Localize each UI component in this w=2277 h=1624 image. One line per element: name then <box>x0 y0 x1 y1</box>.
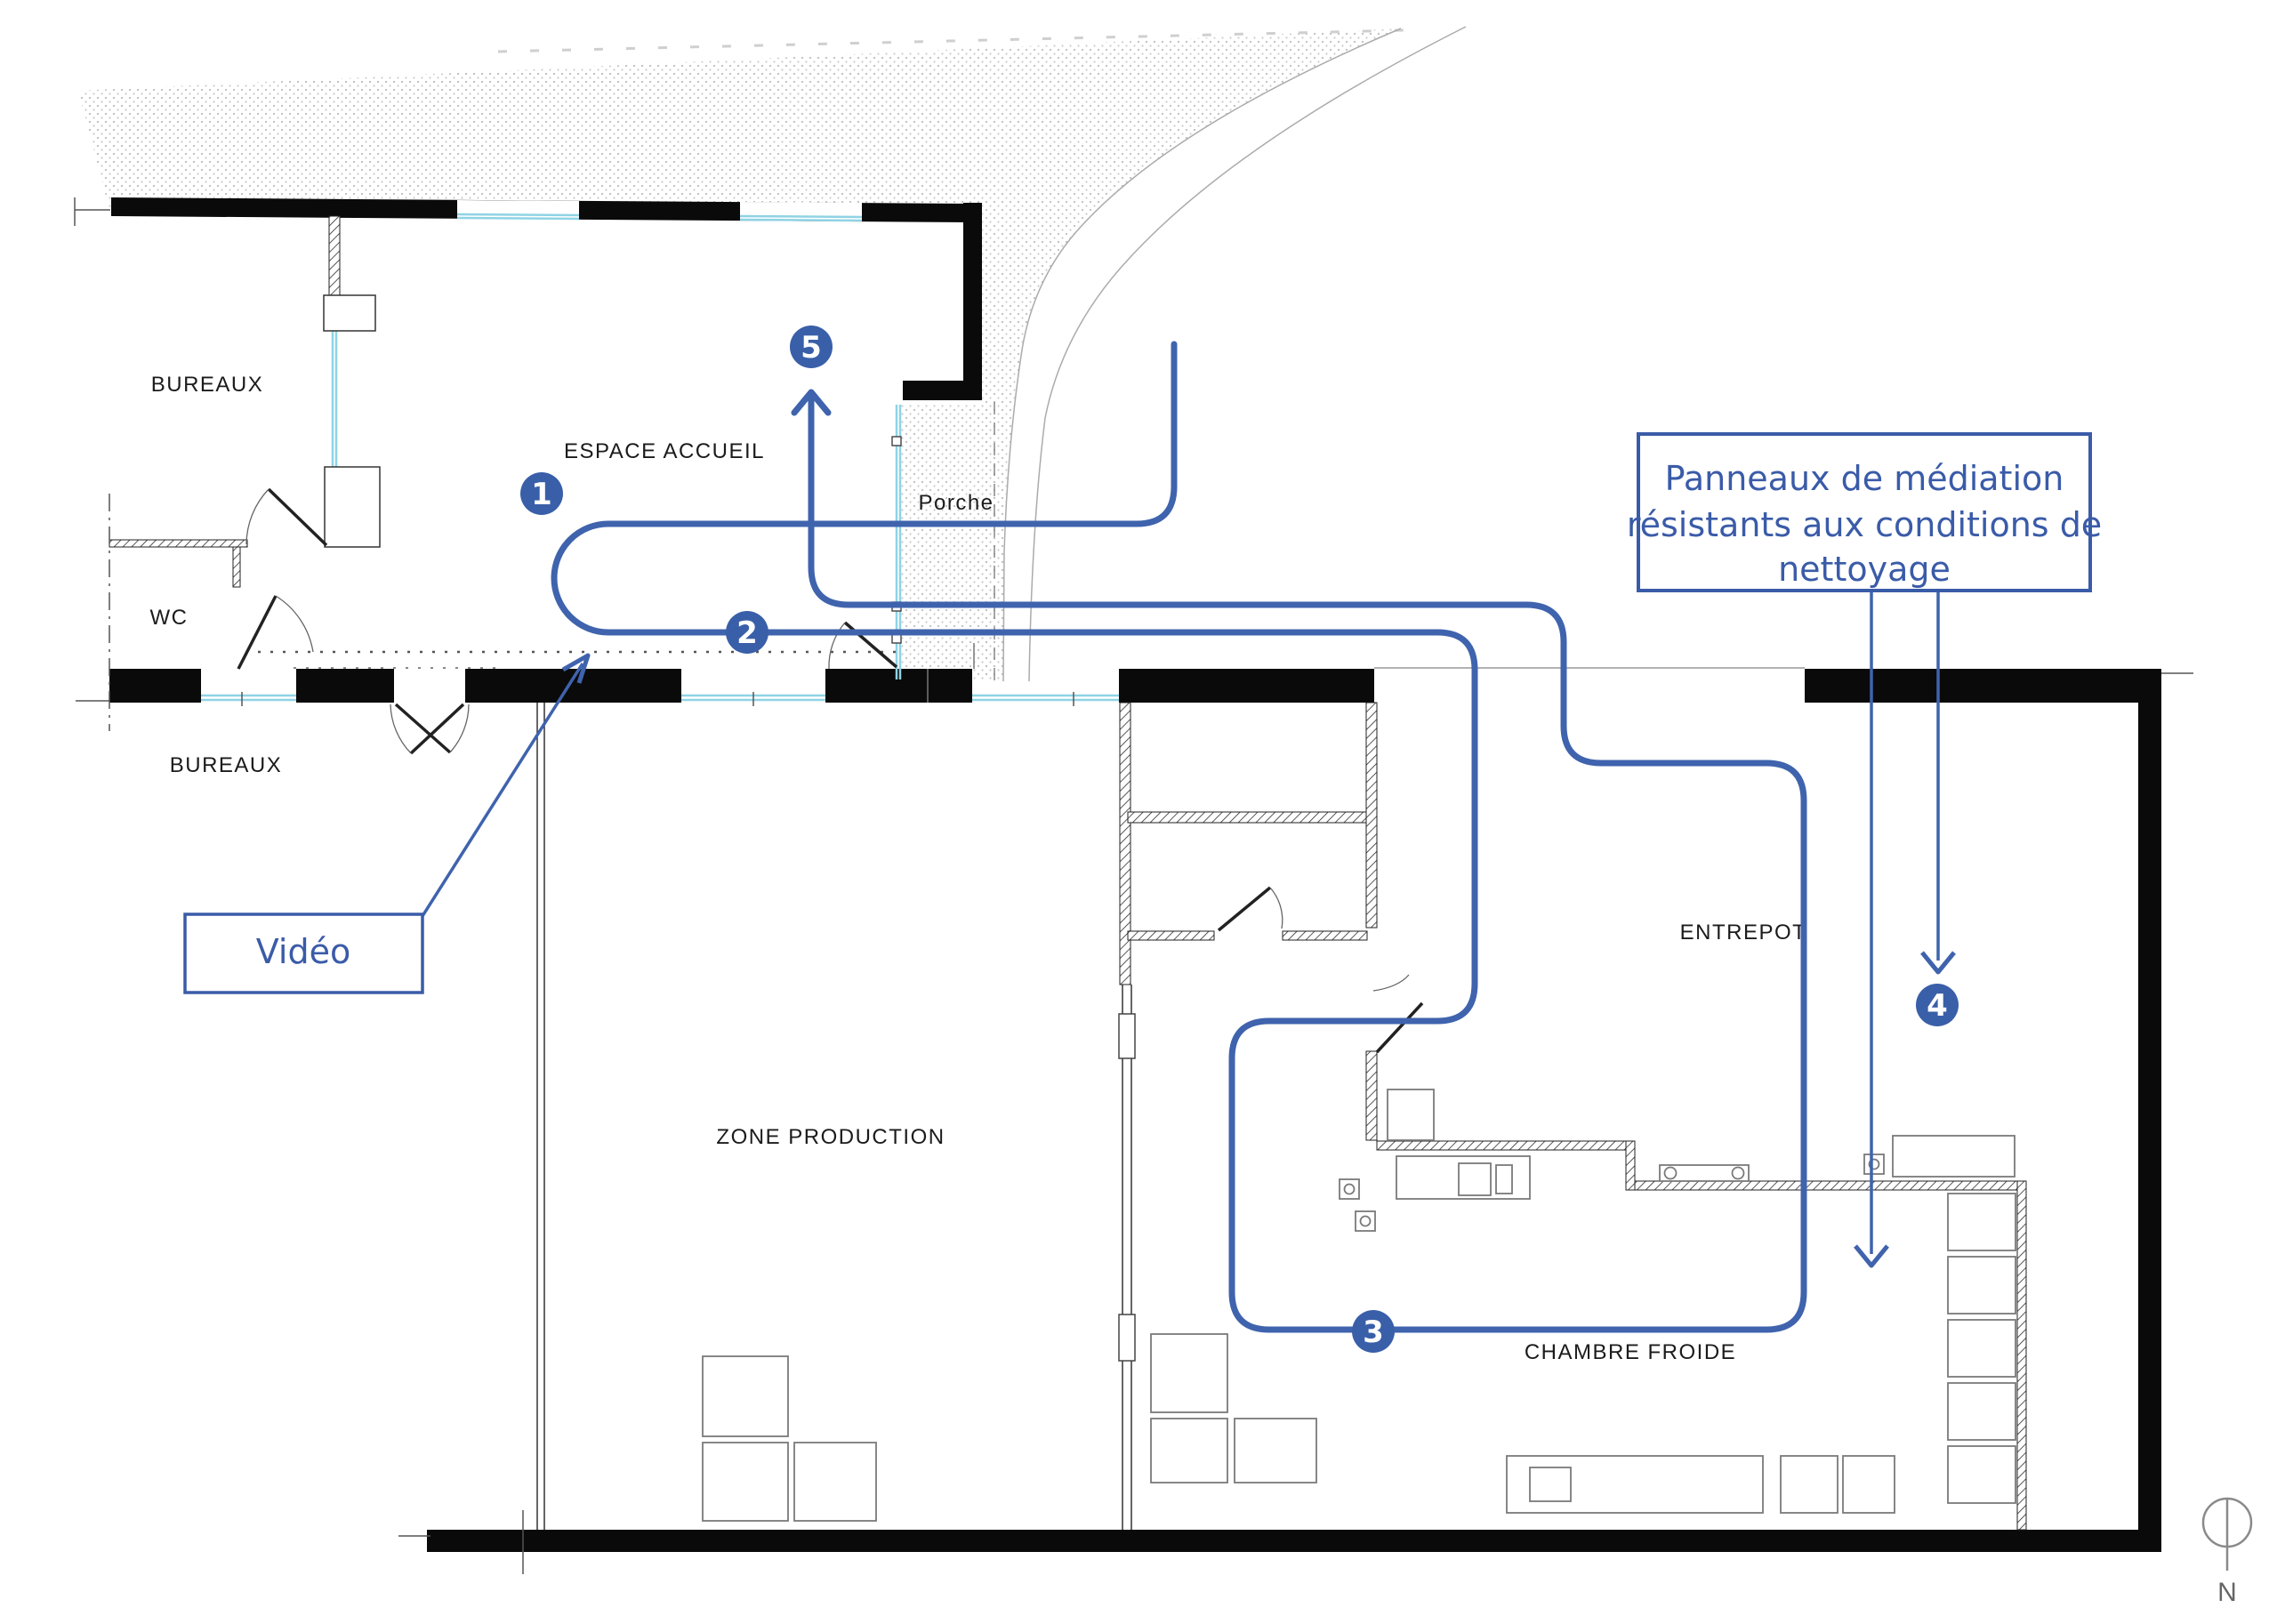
svg-text:1: 1 <box>531 477 552 512</box>
video-annotation: Vidéo <box>185 655 588 993</box>
counter-left <box>1377 1141 1635 1150</box>
panneaux-line-2: résistants aux conditions de <box>1627 505 2102 544</box>
room-label-entrepot: ENTREPOT <box>1680 921 1807 945</box>
wall-bottom <box>427 1530 2161 1552</box>
wall-entrepot-right <box>2138 669 2161 1552</box>
wall-chambre-froide <box>2017 1181 2026 1530</box>
wall-wc-right <box>233 547 240 587</box>
panneaux-line-3: nettoyage <box>1778 550 1951 589</box>
room-label-wc: WC <box>150 606 189 630</box>
panneaux-line-1: Panneaux de médiation <box>1665 459 2064 498</box>
panneaux-annotation: Panneaux de médiation résistants aux con… <box>1627 434 2102 1266</box>
room-label-porche: Porche <box>918 491 994 515</box>
north-label: N <box>2217 1578 2237 1607</box>
route-marker-5: 5 <box>790 326 833 368</box>
wall-step <box>903 381 982 400</box>
cold-room-shelving <box>1948 1194 2016 1503</box>
svg-text:5: 5 <box>801 330 822 366</box>
video-annotation-label: Vidéo <box>256 932 350 971</box>
wall-right <box>963 203 982 382</box>
svg-text:3: 3 <box>1363 1314 1384 1350</box>
room-label-chambre-froide: CHAMBRE FROIDE <box>1525 1340 1736 1364</box>
svg-text:2: 2 <box>736 615 758 651</box>
route-marker-3: 3 <box>1352 1310 1395 1353</box>
partition-bureaux <box>329 216 340 302</box>
room-label-bureaux-bottom: BUREAUX <box>170 753 283 777</box>
north-indicator: N <box>2203 1498 2251 1607</box>
route-marker-1: 1 <box>520 472 563 515</box>
wall-wc-top <box>109 540 247 547</box>
room-label-bureaux-top: BUREAUX <box>151 373 264 397</box>
equipment <box>703 1089 2016 1521</box>
route-marker-2: 2 <box>726 611 768 654</box>
exterior-ground-stipple <box>78 27 1466 681</box>
counter-right <box>1635 1181 2017 1190</box>
door-leaf-chambre-froide <box>1377 1003 1422 1052</box>
floor-plan-page: BUREAUX ESPACE ACCUEIL Porche WC BUREAUX… <box>0 0 2277 1624</box>
route-marker-4: 4 <box>1916 984 1959 1026</box>
svg-text:4: 4 <box>1927 988 1948 1024</box>
wall-entrepot-top <box>1805 669 2161 703</box>
room-label-zone-production: ZONE PRODUCTION <box>716 1125 945 1149</box>
floor-plan-drawing: BUREAUX ESPACE ACCUEIL Porche WC BUREAUX… <box>0 0 2277 1624</box>
room-label-espace-accueil: ESPACE ACCUEIL <box>564 439 765 463</box>
porch-stipple <box>897 405 994 681</box>
